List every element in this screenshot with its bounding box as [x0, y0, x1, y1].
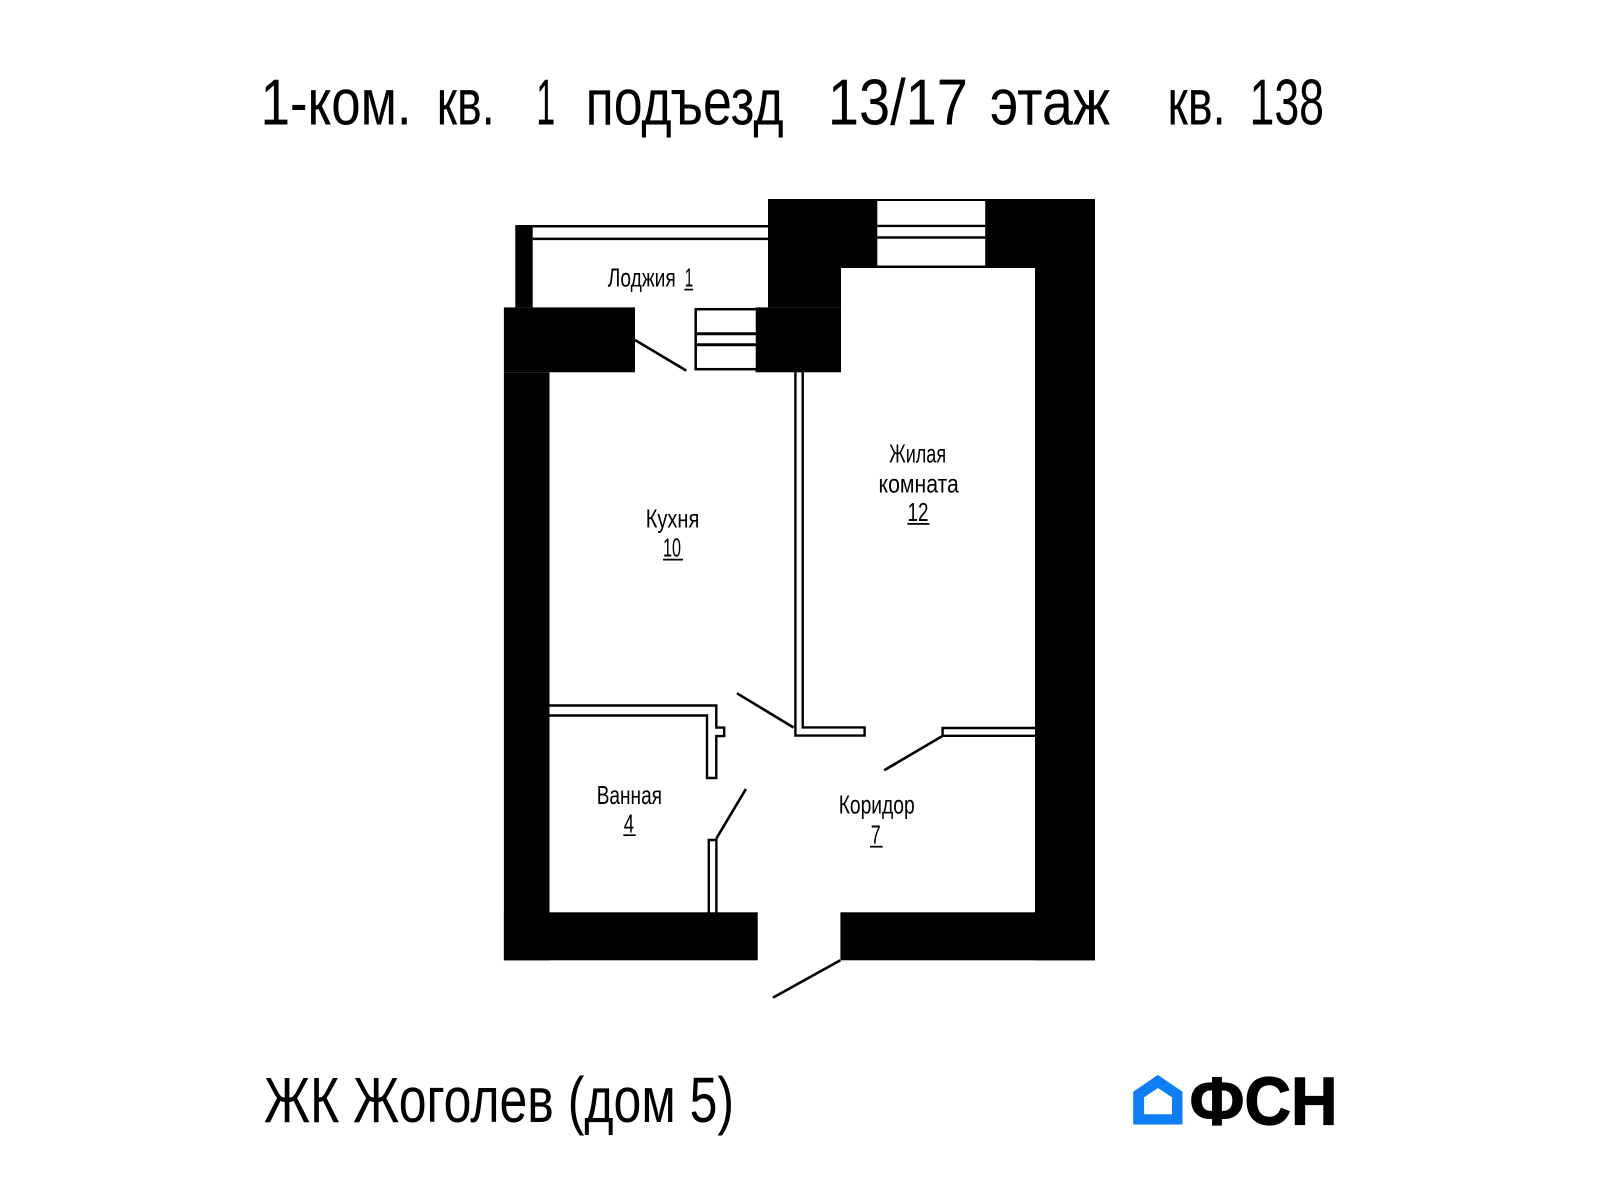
svg-text:10: 10	[663, 533, 681, 563]
svg-text:Кухня: Кухня	[646, 504, 700, 534]
svg-text:1-ком.: 1-ком.	[261, 66, 412, 139]
svg-text:кв.: кв.	[1168, 66, 1226, 139]
svg-text:12: 12	[908, 497, 929, 527]
svg-text:4: 4	[624, 809, 634, 839]
svg-text:комната: комната	[879, 469, 960, 499]
svg-text:подъезд: подъезд	[586, 66, 784, 139]
svg-text:Лоджия: Лоджия	[608, 262, 676, 292]
svg-text:ФСН: ФСН	[1190, 1063, 1338, 1139]
svg-text:Жилая: Жилая	[889, 439, 946, 469]
svg-text:ЖК Жоголев (дом 5): ЖК Жоголев (дом 5)	[264, 1064, 734, 1136]
svg-text:7: 7	[871, 820, 881, 850]
svg-text:этаж: этаж	[990, 66, 1110, 139]
svg-text:Коридор: Коридор	[839, 789, 915, 819]
svg-text:кв.: кв.	[437, 66, 495, 139]
svg-text:1: 1	[685, 262, 693, 292]
svg-text:138: 138	[1250, 66, 1325, 139]
svg-text:13/17: 13/17	[828, 66, 968, 139]
svg-text:1: 1	[536, 66, 555, 139]
svg-text:Ванная: Ванная	[597, 780, 662, 810]
